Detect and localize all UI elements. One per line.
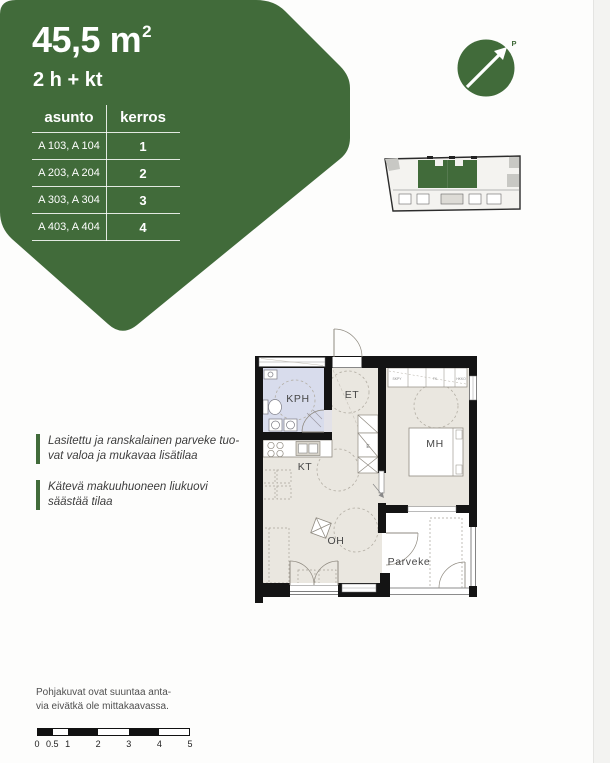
scale-tick: 4 xyxy=(157,739,162,749)
feature-note: Lasitettu ja ranskalainen parveke tuo- v… xyxy=(36,434,239,464)
area-superscript: 2 xyxy=(142,22,151,41)
disclaimer-text: Pohjakuvat ovat suuntaa anta- via eivätk… xyxy=(36,686,171,714)
disclaimer-line: Pohjakuvat ovat suuntaa anta- xyxy=(36,687,171,698)
floor-cell: 4 xyxy=(106,220,180,235)
note-line: Lasitettu ja ranskalainen parveke tuo- xyxy=(48,435,239,447)
building-locator-map xyxy=(383,148,525,214)
north-label: P xyxy=(511,39,516,48)
hatch-corner xyxy=(509,157,519,168)
note-line: säästää tilaa xyxy=(48,496,113,508)
disclaimer-line: via eivätkä ole mittakaavassa. xyxy=(36,701,169,712)
col-header-kerros: kerros xyxy=(106,109,180,126)
scale-bar-segments xyxy=(37,728,190,736)
brochure-page: 45,5 m2 2 h + kt asunto kerros A 103, A … xyxy=(0,0,610,763)
apartments-cell: A 203, A 204 xyxy=(32,167,106,179)
scale-tick: 0 xyxy=(34,739,39,749)
room-label-mh: MH xyxy=(426,438,444,450)
feature-note: Kätevä makuuhuoneen liukuovi säästää til… xyxy=(36,480,208,510)
note-accent-bar xyxy=(36,480,40,510)
col-header-asunto: asunto xyxy=(32,109,106,126)
scale-tick: 1 xyxy=(65,739,70,749)
floor-cell: 1 xyxy=(106,139,180,154)
apartment-floor-table: asunto kerros A 103, A 104 1 A 203, A 20… xyxy=(32,103,180,241)
apartments-cell: A 403, A 404 xyxy=(32,221,106,233)
entry-door xyxy=(333,329,363,368)
page-edge-strip xyxy=(593,0,610,763)
closet-label: TK xyxy=(433,377,438,381)
bed xyxy=(409,428,463,476)
room-label-oh: OH xyxy=(328,535,345,547)
scale-tick: 0.5 xyxy=(46,739,59,749)
scale-bar: 0 0.5 1 2 3 4 5 xyxy=(37,728,190,751)
room-label-et: ET xyxy=(345,389,360,401)
kitchen-counter xyxy=(263,440,332,457)
scale-tick: 5 xyxy=(187,739,192,749)
apartment-area: 45,5 m2 xyxy=(32,22,150,58)
room-label-kph: KPH xyxy=(286,393,309,405)
note-line: Kätevä makuuhuoneen liukuovi xyxy=(48,481,208,493)
note-line: vat valoa ja mukavaa lisätilaa xyxy=(48,450,198,462)
compass-north-icon: P xyxy=(450,30,528,104)
apartment-type: 2 h + kt xyxy=(33,69,102,92)
apartments-cell: A 103, A 104 xyxy=(32,140,106,152)
floor-cell: 2 xyxy=(106,166,180,181)
scale-tick: 3 xyxy=(126,739,131,749)
apartments-cell: A 303, A 304 xyxy=(32,194,106,206)
scale-bar-labels: 0 0.5 1 2 3 4 5 xyxy=(37,739,190,751)
area-value: 45,5 m xyxy=(32,19,141,60)
table-column-divider xyxy=(106,105,107,241)
hatch-corner xyxy=(507,174,519,187)
floorplan: E SKPY TK HKKO xyxy=(243,318,478,610)
room-label-parveke: Parveke xyxy=(388,556,431,568)
scale-tick: 2 xyxy=(96,739,101,749)
floor-cell: 3 xyxy=(106,193,180,208)
closet-label: SKPY xyxy=(392,377,402,381)
closet-label: HKKO xyxy=(456,377,466,381)
room-label-kt: KT xyxy=(298,461,313,473)
note-accent-bar xyxy=(36,434,40,464)
